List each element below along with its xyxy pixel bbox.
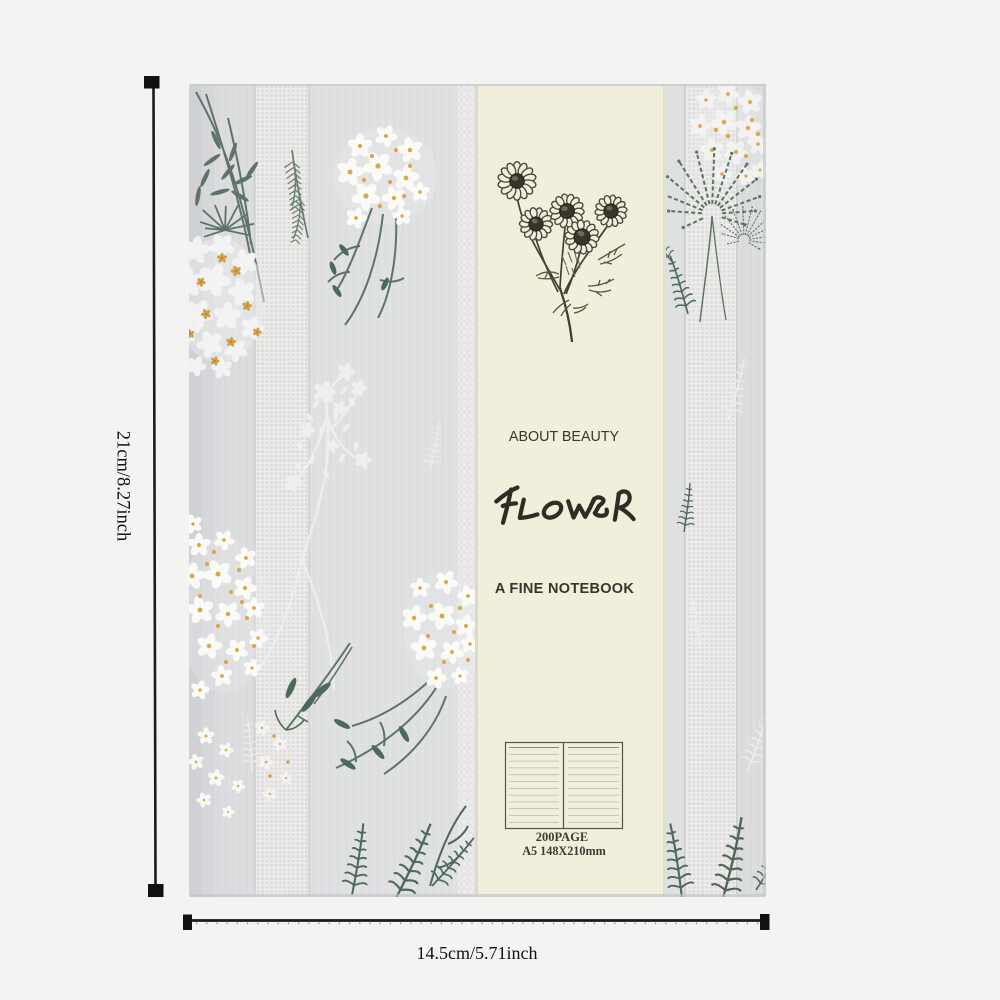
svg-text:ABOUT BEAUTY: ABOUT BEAUTY — [509, 429, 620, 445]
svg-text:200PAGE: 200PAGE — [536, 830, 589, 844]
svg-text:14.5cm/5.71inch: 14.5cm/5.71inch — [417, 943, 538, 963]
svg-text:A5 148X210mm: A5 148X210mm — [522, 844, 606, 858]
svg-text:A FINE NOTEBOOK: A FINE NOTEBOOK — [495, 581, 635, 597]
svg-text:21cm/8.27inch: 21cm/8.27inch — [113, 431, 133, 541]
